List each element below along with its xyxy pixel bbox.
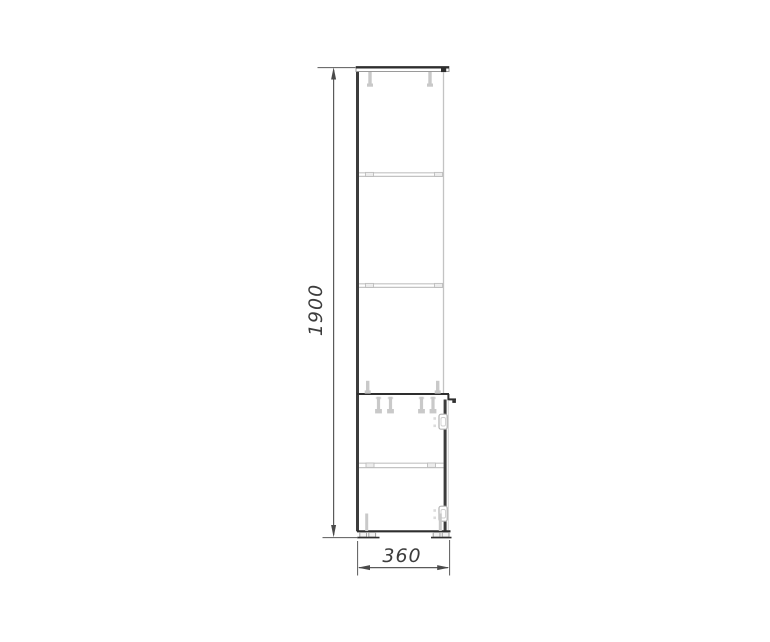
foot-block — [360, 533, 367, 538]
connector-pins — [365, 381, 441, 394]
dowel-pin-foot — [367, 84, 373, 87]
cabinet-side-view — [356, 67, 456, 538]
arrow-left-icon — [358, 565, 370, 570]
foot-block — [433, 533, 440, 538]
shelf-upper-2 — [359, 283, 444, 287]
width-dimension: 360 — [358, 540, 450, 576]
shelf-upper-1 — [359, 172, 444, 176]
left-side-panel — [356, 67, 359, 531]
mounting-screws — [375, 397, 436, 414]
arrow-down-icon — [331, 525, 336, 537]
screw — [430, 397, 437, 414]
shelf-support-fitting — [366, 283, 374, 287]
top-panel-end-cap — [441, 67, 446, 73]
screw — [375, 397, 382, 414]
hinge-screw-dot — [433, 417, 436, 420]
connector-pin-base — [365, 390, 371, 393]
height-dimension: 1900 — [305, 67, 358, 537]
screw — [418, 397, 425, 414]
connector-pin-base — [435, 390, 441, 393]
screw — [387, 397, 394, 414]
top-dowel-pins — [367, 72, 433, 87]
dowel-pin-foot — [427, 84, 433, 87]
dowel-pin — [428, 72, 431, 85]
shelf-lower — [359, 463, 444, 468]
hinge-cup — [439, 414, 447, 429]
foot-block — [442, 533, 449, 538]
shelf-support-fitting — [366, 172, 374, 176]
shelf-support-fitting — [435, 283, 443, 287]
arrow-right-icon — [437, 565, 449, 570]
shelf-support-fitting — [428, 463, 436, 467]
foot-screw-shaft — [439, 514, 442, 532]
hinge-screw-dot — [433, 509, 436, 512]
foot-left — [357, 514, 379, 538]
foot-screw-shaft — [365, 514, 368, 532]
foot-block — [369, 533, 376, 538]
arrow-up-icon — [331, 67, 336, 79]
hinge-screw-dot — [433, 425, 436, 428]
hinge-top — [433, 414, 447, 429]
shelf-support-fitting — [435, 172, 443, 176]
drawing-canvas: 1900 360 — [0, 0, 770, 642]
furniture-drawing-svg: 1900 360 — [0, 0, 770, 642]
dowel-pin — [368, 72, 371, 85]
height-dimension-label: 1900 — [305, 284, 327, 336]
shelf-support-fitting — [366, 463, 374, 467]
width-dimension-label: 360 — [382, 545, 421, 567]
top-panel — [356, 67, 449, 73]
hinge-screw-dot — [433, 517, 436, 520]
step-tick — [452, 400, 456, 403]
lower-section — [357, 381, 456, 538]
upper-section — [356, 67, 449, 532]
